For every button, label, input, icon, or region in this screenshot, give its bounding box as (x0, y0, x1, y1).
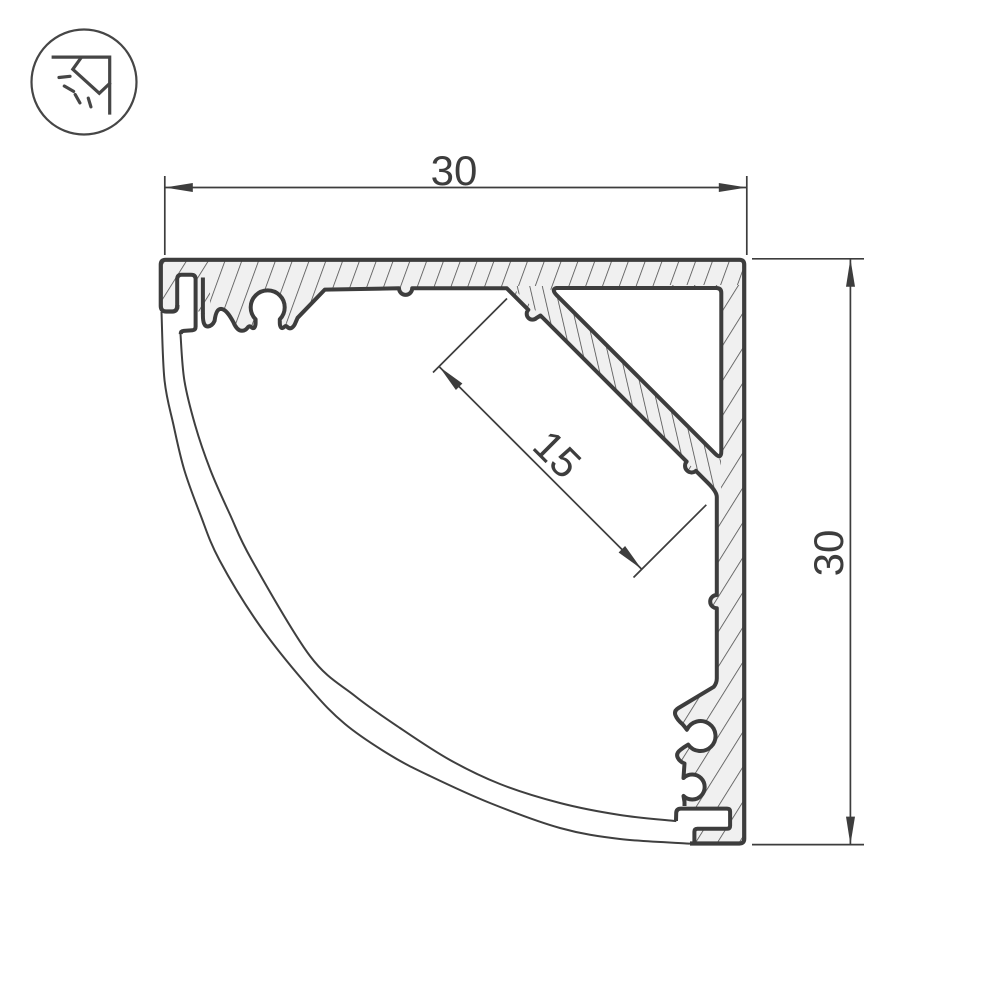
svg-text:30: 30 (431, 147, 478, 194)
svg-text:30: 30 (805, 530, 852, 577)
